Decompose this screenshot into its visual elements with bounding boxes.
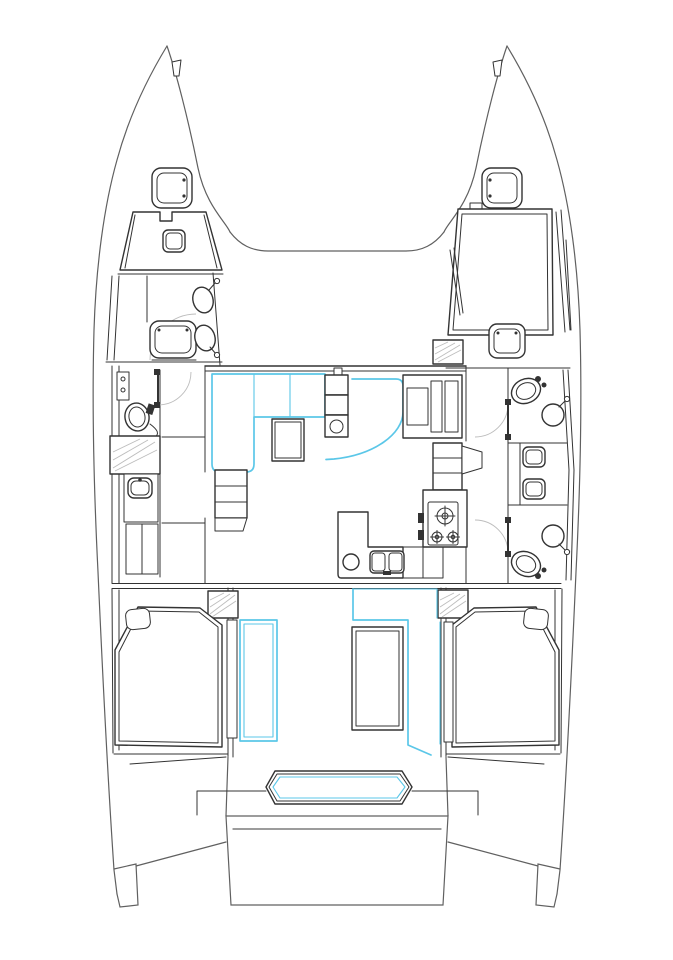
head-toilet — [123, 401, 158, 438]
forward-head-door — [475, 399, 511, 440]
port-mid-head — [110, 369, 205, 577]
companionway-steps-port — [215, 470, 247, 531]
saloon-sofa — [212, 374, 325, 472]
fixed-door-panel-starboard — [444, 622, 453, 742]
shower-tray — [110, 436, 160, 474]
wardrobe — [126, 524, 158, 574]
step-box-starboard — [438, 590, 468, 618]
entry-steps-hatched — [433, 340, 463, 364]
pillow — [523, 608, 549, 630]
step-box-port — [208, 591, 238, 618]
port-forward-bathroom — [107, 273, 220, 365]
berth-foot-hatch — [489, 324, 525, 358]
berth-hatch-port — [163, 230, 185, 252]
hull-window-hatch — [150, 321, 196, 358]
saloon-table — [272, 419, 304, 461]
three-burner-cooktop — [418, 490, 467, 547]
sideboard-with-sink — [325, 375, 348, 437]
starboard-forward-cabin — [433, 203, 571, 364]
deck-plan-canvas: catamaran-yacht-deck-plan — [0, 0, 673, 960]
nav-station — [403, 375, 462, 438]
forward-head-toilet — [507, 374, 546, 408]
wash-basin — [124, 474, 158, 522]
aft-head-door — [475, 517, 511, 557]
aft-cabins — [115, 607, 559, 747]
companionway-steps-starboard — [433, 443, 482, 490]
foredeck-fittings — [152, 60, 522, 208]
fore-hatch-starboard — [482, 168, 522, 208]
bow-cleat-port — [172, 60, 181, 76]
cockpit — [240, 589, 440, 804]
port-forward-cabin — [118, 212, 223, 274]
fore-hatch-port — [152, 168, 192, 208]
aft-head-toilet — [507, 547, 546, 581]
galley — [338, 490, 467, 578]
mid-cabinet-hatches — [523, 447, 545, 499]
pillow — [125, 608, 151, 630]
aft-berth-starboard — [452, 607, 559, 747]
forward-berth-starboard — [448, 203, 553, 335]
bow-cleat-starboard — [493, 60, 502, 76]
deck-plan-drawing: catamaran-yacht-deck-plan — [0, 0, 673, 960]
aft-bench — [266, 771, 412, 804]
cockpit-table — [352, 627, 403, 730]
fixed-door-panel-port — [227, 620, 237, 738]
double-sink — [370, 551, 404, 575]
aft-head-basin — [542, 525, 570, 555]
aft-berth-port — [115, 607, 222, 747]
head-cabinet — [117, 372, 129, 400]
starboard-heads — [475, 368, 570, 583]
sliding-door-port[interactable] — [240, 620, 277, 741]
